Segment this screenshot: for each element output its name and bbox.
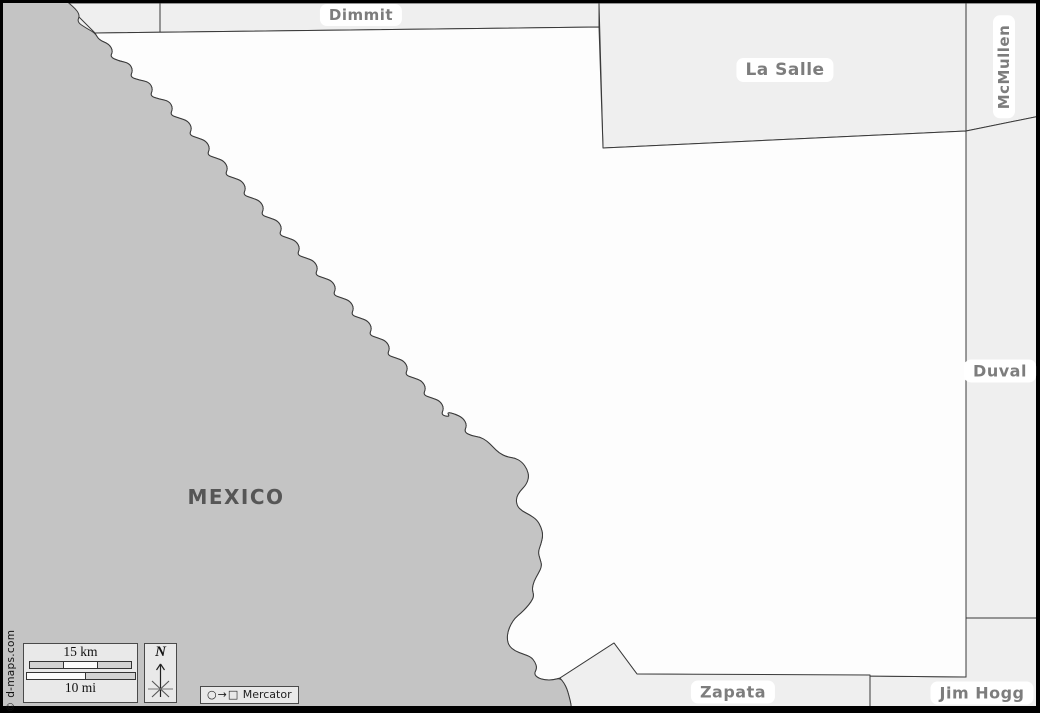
scale-segment <box>63 662 96 668</box>
compass-box: N <box>144 643 177 703</box>
projection-name: Mercator <box>243 688 292 701</box>
label-mexico: MEXICO <box>187 485 284 509</box>
scale-segment <box>27 673 85 679</box>
label-duval: Duval <box>964 360 1036 383</box>
scale-segment <box>97 662 131 668</box>
frame-right <box>1036 0 1040 713</box>
scale-segment <box>85 673 135 679</box>
frame-top <box>0 0 1040 3</box>
scale-km-label: 15 km <box>24 644 137 660</box>
frame-left <box>0 0 3 713</box>
map-canvas: Dimmit La Salle McMullen Duval Jim Hogg … <box>0 0 1040 713</box>
projection-icon: ○→□ <box>207 688 239 701</box>
copyright-text: © d-maps.com <box>5 630 17 712</box>
scale-mi-bar <box>26 672 136 680</box>
label-zapata: Zapata <box>691 681 775 704</box>
label-mcmullen: McMullen <box>993 16 1015 119</box>
label-jim-hogg: Jim Hogg <box>931 682 1034 705</box>
label-dimmit: Dimmit <box>320 4 402 26</box>
scale-segment <box>30 662 63 668</box>
map-graphic <box>0 0 1040 713</box>
scale-bar: 15 km 10 mi <box>23 643 138 703</box>
frame-bottom <box>0 706 1040 713</box>
scale-km-bar <box>29 661 132 669</box>
label-la-salle: La Salle <box>736 58 833 82</box>
compass-arrow-icon <box>145 661 176 701</box>
projection-box: ○→□ Mercator <box>200 686 299 704</box>
north-label: N <box>145 644 176 661</box>
scale-mi-label: 10 mi <box>24 680 137 696</box>
